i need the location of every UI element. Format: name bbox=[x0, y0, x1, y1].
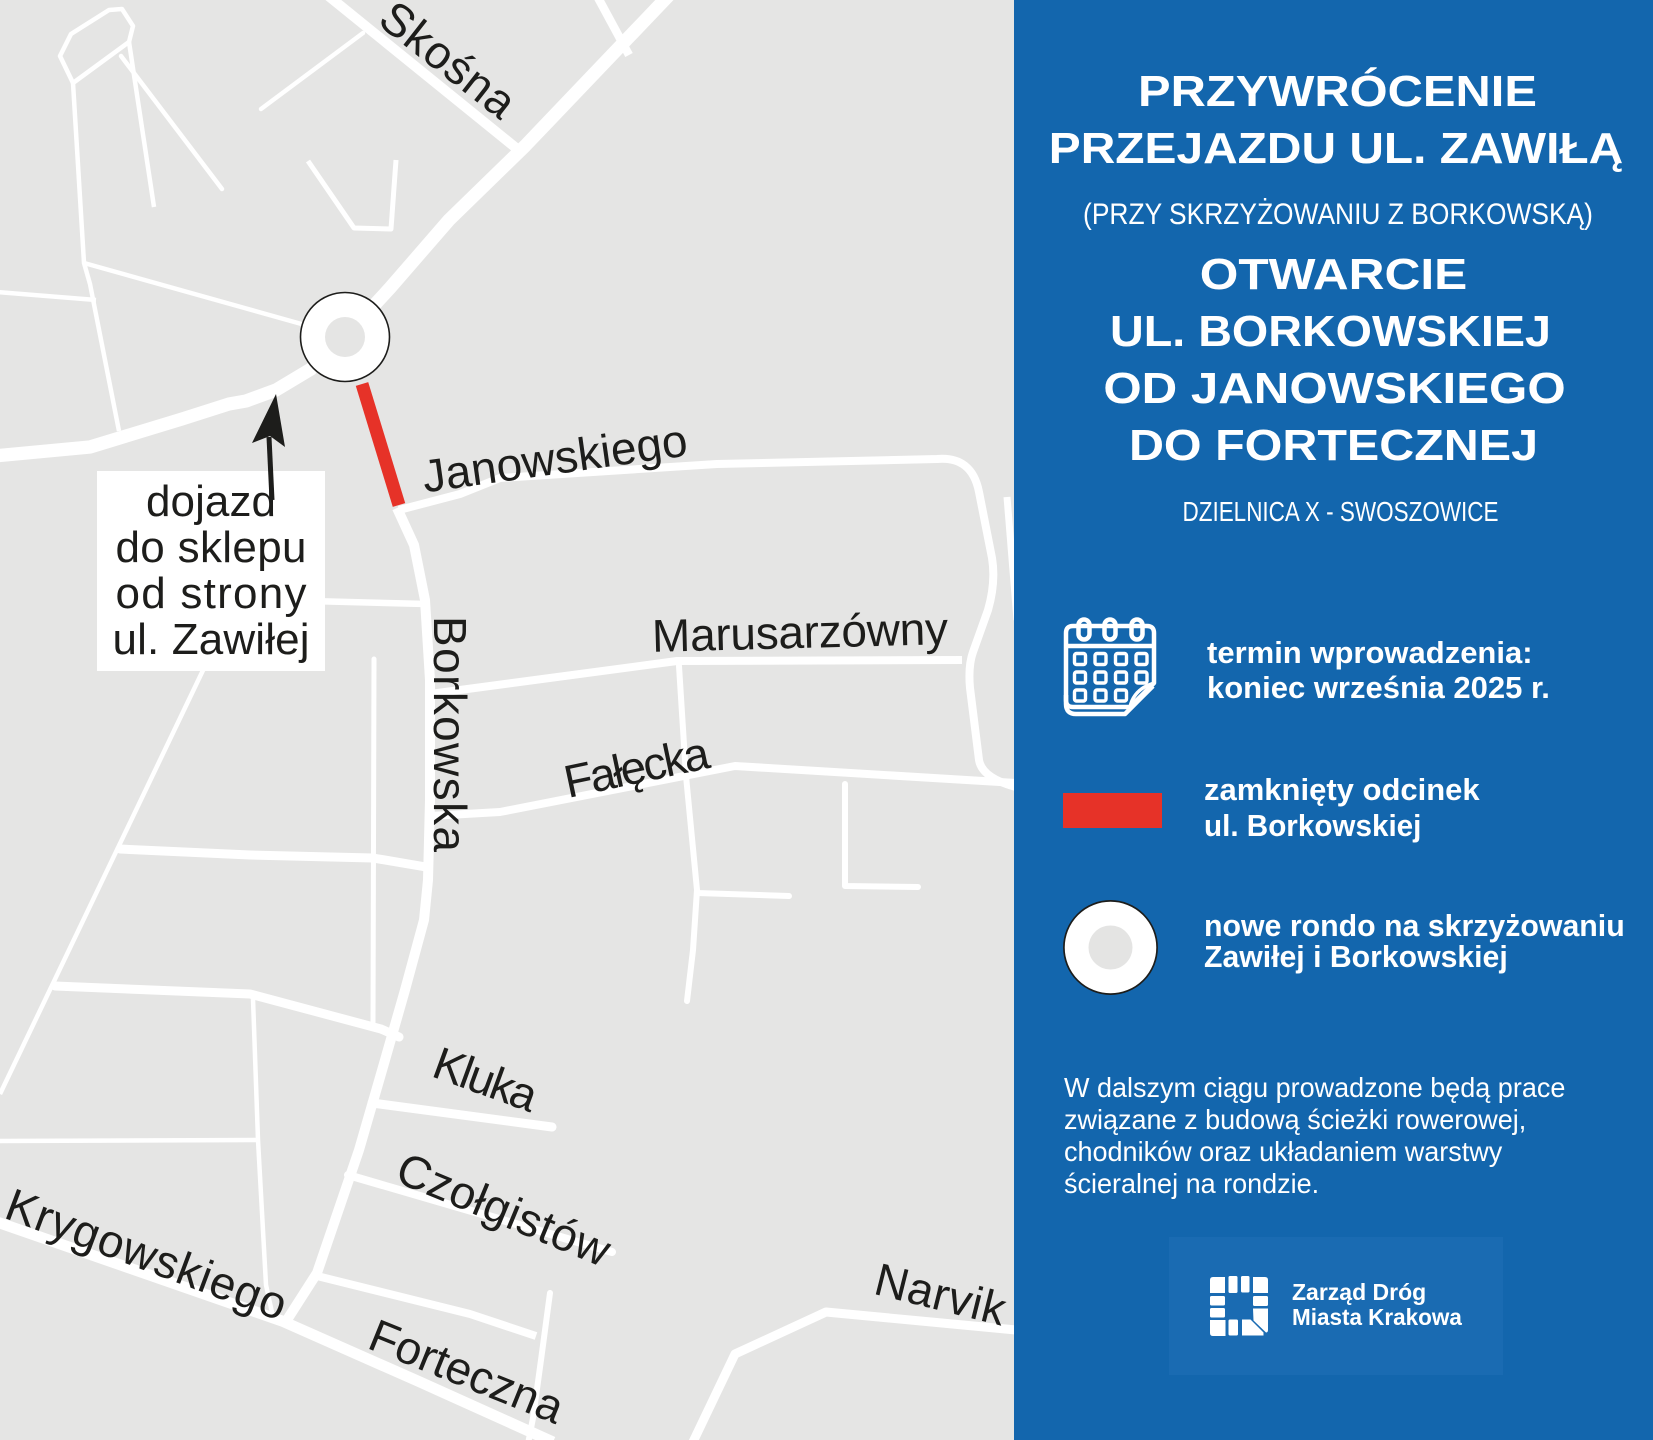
svg-text:Janowskiego: Janowskiego bbox=[419, 414, 691, 503]
svg-text:Marusarzówny: Marusarzówny bbox=[651, 602, 948, 662]
svg-text:Fałęcka: Fałęcka bbox=[559, 726, 714, 808]
svg-text:Krygowskiego: Krygowskiego bbox=[0, 1178, 294, 1330]
svg-text:do sklepu: do sklepu bbox=[116, 523, 307, 572]
svg-text:Czołgistów: Czołgistów bbox=[389, 1142, 618, 1277]
svg-text:dojazd: dojazd bbox=[146, 477, 276, 526]
svg-text:od strony: od strony bbox=[116, 569, 307, 618]
svg-text:Skośna: Skośna bbox=[370, 0, 527, 129]
svg-text:Borkowska: Borkowska bbox=[424, 616, 476, 852]
svg-text:ul. Zawiłej: ul. Zawiłej bbox=[113, 615, 310, 664]
